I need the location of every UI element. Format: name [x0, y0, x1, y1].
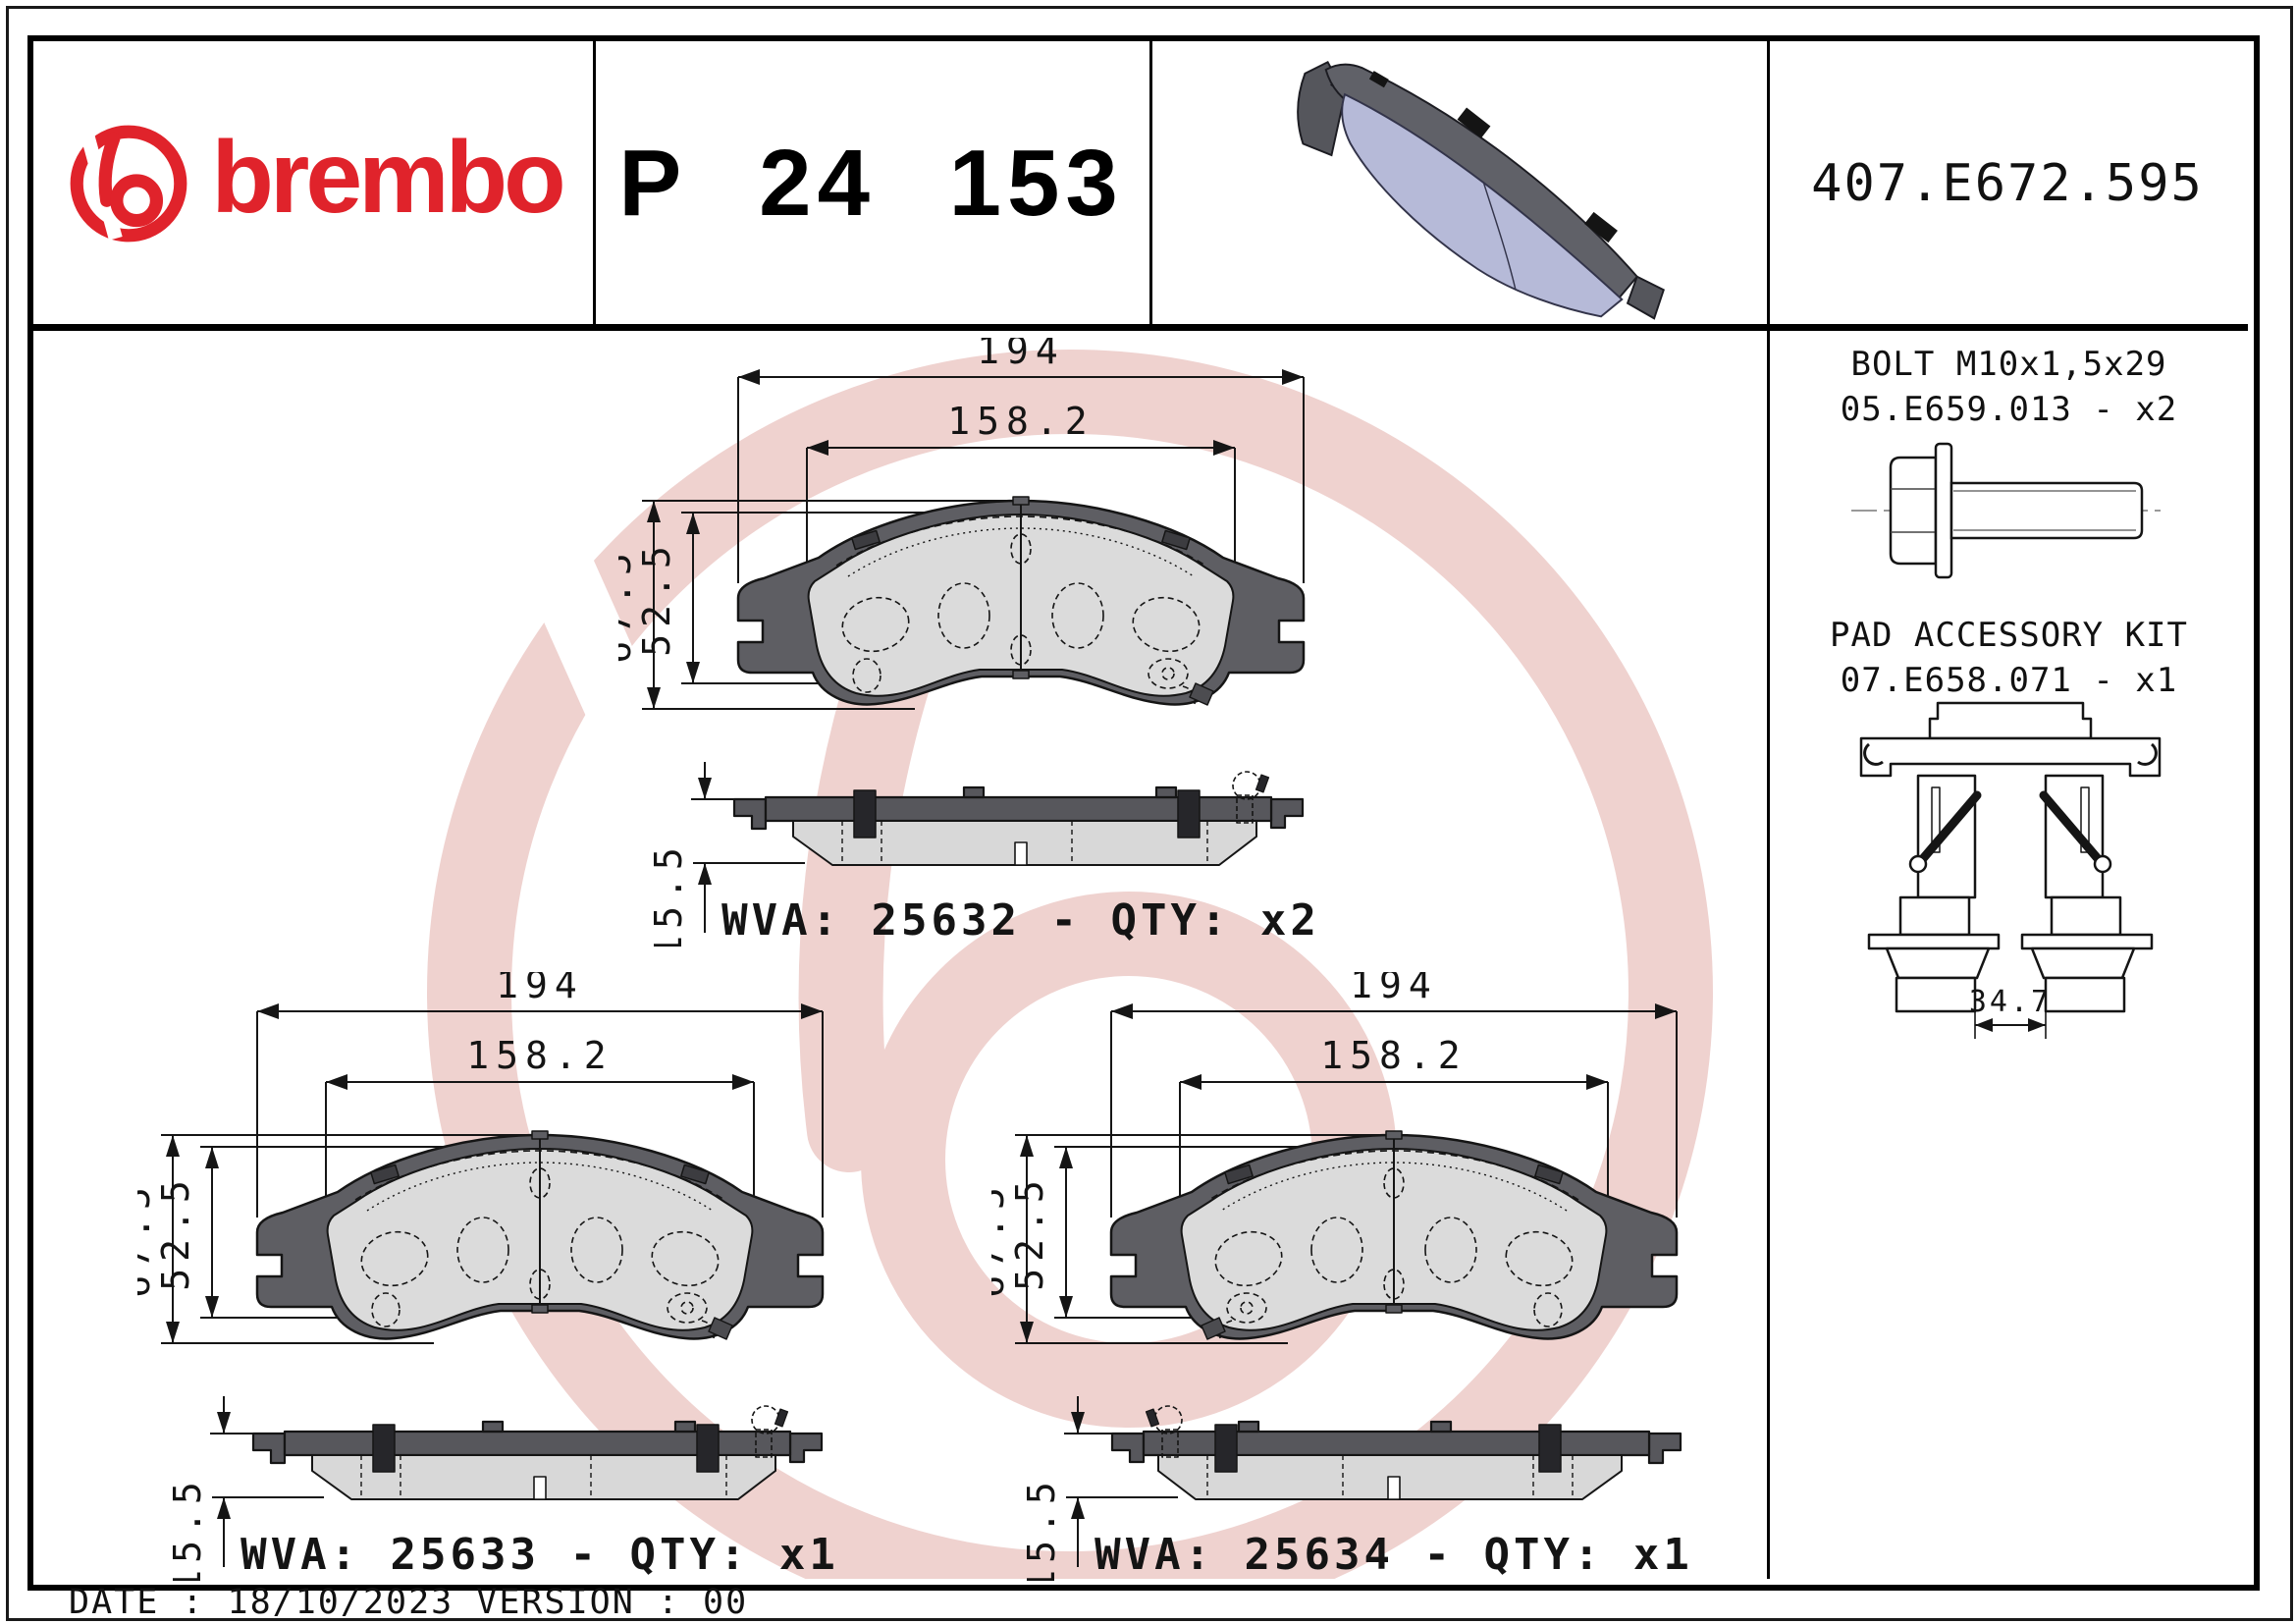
dim-thickness: 15.5 [1020, 1475, 1063, 1581]
reference-code-cell: 407.E672.595 [1767, 41, 2248, 326]
pad-drawing-25634: 194 158.2 67.5 52.5 15.5 WVA: 25634 - QT… [991, 972, 1718, 1581]
bolt-title: BOLT M10x1,5x29 [1770, 342, 2248, 387]
wva-label: WVA: 25632 - QTY: x2 [721, 895, 1320, 946]
dim-pad-height: 52.5 [1008, 1173, 1051, 1291]
wva-label: WVA: 25634 - QTY: x1 [1095, 1530, 1693, 1580]
brembo-roundel-icon [64, 119, 193, 248]
date-version: DATE : 18/10/2023 VERSION : 00 [69, 1583, 748, 1622]
wva-label: WVA: 25633 - QTY: x1 [240, 1530, 839, 1580]
dim-overall-width: 194 [1350, 972, 1438, 1006]
kit-title: PAD ACCESSORY KIT [1770, 613, 2248, 658]
brake-pad-3d-image [1184, 41, 1734, 326]
brand-wordmark: brembo [211, 127, 561, 229]
bolt-section-title: BOLT M10x1,5x29 05.E659.013 - x2 [1770, 342, 2248, 432]
bolt-drawing [1845, 432, 2169, 589]
dim-pad-height: 52.5 [635, 539, 678, 657]
dim-thickness: 15.5 [166, 1475, 209, 1581]
kit-width-dim: 34.7 [1969, 985, 2052, 1019]
part-number: P 24 153 [618, 130, 1124, 238]
dim-overall-width: 194 [496, 972, 584, 1006]
pad-drawing-25632: 194 158.2 67.5 52.5 15.5 WVA: 25632 - QT… [618, 338, 1345, 947]
brand-logo: brembo [33, 41, 593, 326]
dim-pad-width: 158.2 [466, 1034, 613, 1077]
dim-pad-width: 158.2 [947, 400, 1094, 443]
pad-drawing-25633: 194 158.2 67.5 52.5 15.5 WVA: 25633 - QT… [137, 972, 864, 1581]
datasheet-page: brembo P 24 153 407.E672.595 BOLT M10x1,… [0, 0, 2296, 1624]
dim-pad-width: 158.2 [1320, 1034, 1467, 1077]
reference-code: 407.E672.595 [1811, 154, 2204, 213]
dim-pad-height: 52.5 [154, 1173, 197, 1291]
pad-accessory-kit-drawing: 34.7 [1804, 693, 2216, 1047]
dim-overall-width: 194 [977, 338, 1065, 372]
bolt-code-qty: 05.E659.013 - x2 [1770, 387, 2248, 432]
dim-thickness: 15.5 [647, 840, 690, 947]
kit-section-title: PAD ACCESSORY KIT 07.E658.071 - x1 [1770, 613, 2248, 703]
pad-image-cell [1149, 41, 1767, 326]
part-number-cell: P 24 153 [593, 41, 1149, 326]
